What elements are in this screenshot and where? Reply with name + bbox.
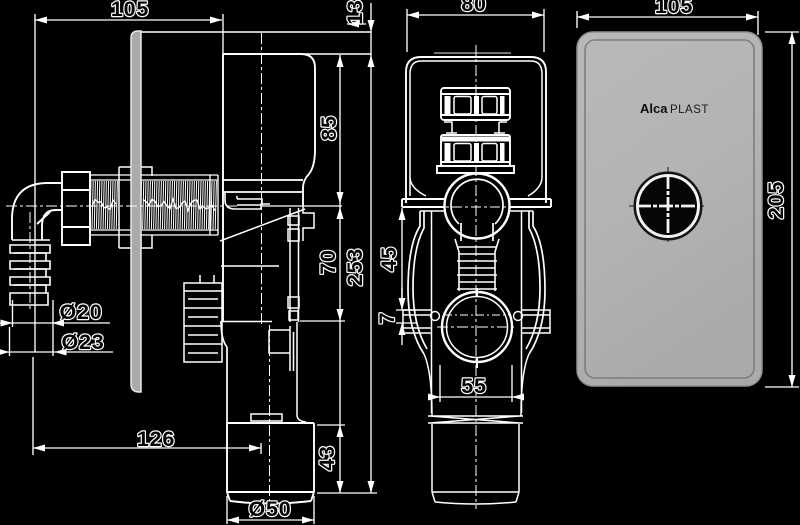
svg-text:AlcaPLAST: AlcaPLAST xyxy=(640,101,709,116)
svg-text:80: 80 xyxy=(461,0,487,16)
svg-text:85: 85 xyxy=(317,115,341,141)
svg-text:Ø50: Ø50 xyxy=(248,497,291,521)
svg-text:45: 45 xyxy=(377,246,401,272)
svg-text:Ø20: Ø20 xyxy=(59,300,102,324)
svg-text:105: 105 xyxy=(111,0,149,21)
svg-text:126: 126 xyxy=(137,427,175,451)
svg-text:Ø23: Ø23 xyxy=(61,330,104,354)
svg-text:43: 43 xyxy=(315,445,339,471)
svg-text:7: 7 xyxy=(375,312,399,325)
svg-text:253: 253 xyxy=(343,248,367,286)
svg-text:205: 205 xyxy=(764,181,788,219)
svg-text:13: 13 xyxy=(343,0,367,25)
svg-text:70: 70 xyxy=(316,249,340,275)
svg-text:55: 55 xyxy=(461,374,487,398)
svg-text:105: 105 xyxy=(655,0,693,18)
